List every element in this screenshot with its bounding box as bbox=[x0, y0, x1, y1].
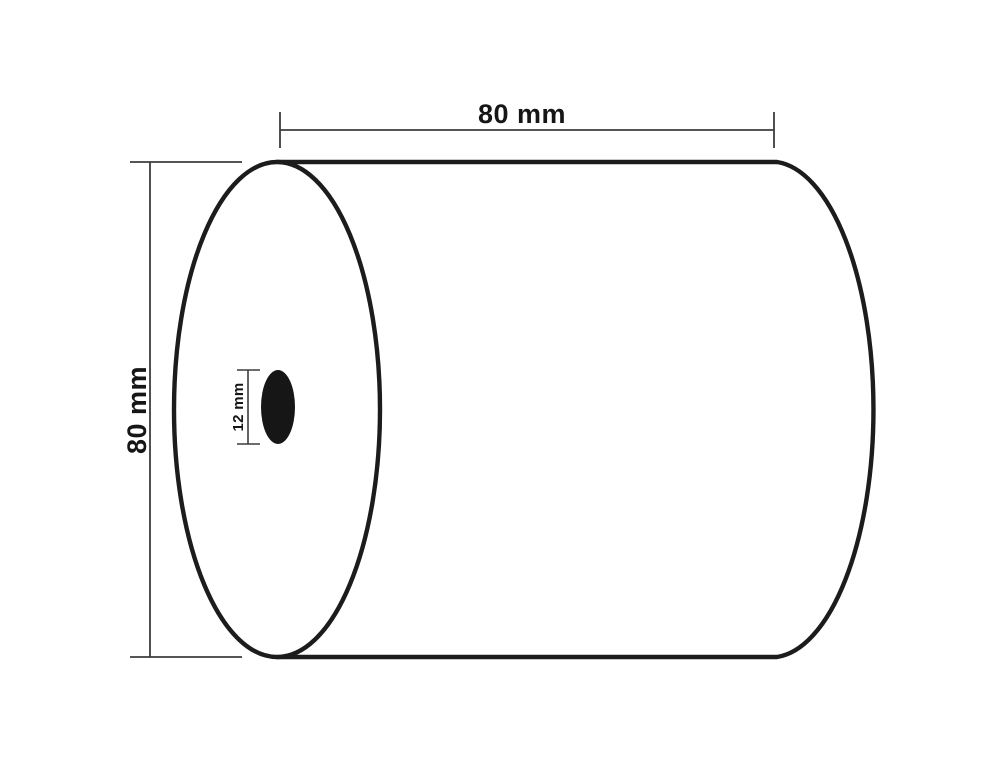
diagram-canvas: 80 mm 80 mm 12 mm bbox=[0, 0, 1000, 762]
paper-roll bbox=[174, 162, 873, 657]
width-dimension-label: 80 mm bbox=[478, 99, 566, 129]
core-hole bbox=[261, 370, 295, 444]
diameter-dimension-label: 80 mm bbox=[122, 366, 152, 454]
roll-dimension-diagram: 80 mm 80 mm 12 mm bbox=[0, 0, 1000, 762]
width-dimension: 80 mm bbox=[280, 99, 774, 148]
core-dimension-label: 12 mm bbox=[230, 382, 247, 431]
